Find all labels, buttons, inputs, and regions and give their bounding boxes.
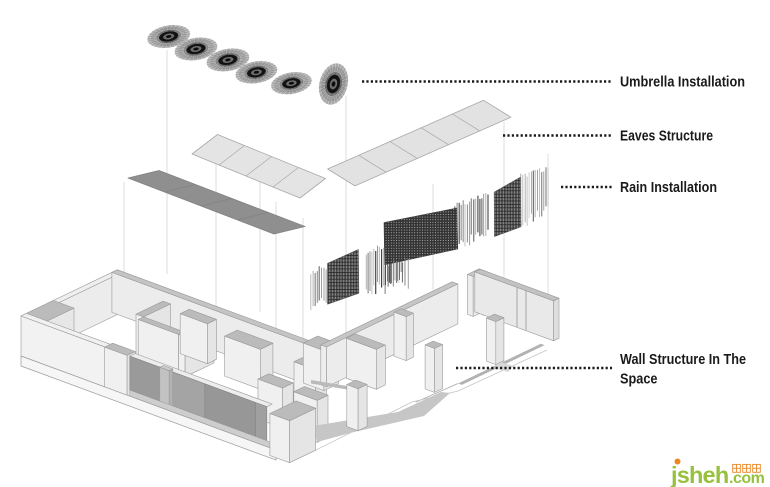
svg-text:Rain Installation: Rain Installation — [620, 180, 717, 196]
svg-text:Eaves Structure: Eaves Structure — [620, 129, 713, 145]
svg-text:Space: Space — [620, 372, 658, 388]
svg-text:Umbrella Installation: Umbrella Installation — [620, 75, 745, 91]
svg-text:Wall Structure In The: Wall Structure In The — [620, 352, 746, 368]
svg-text:jsheh: jsheh — [670, 462, 728, 487]
